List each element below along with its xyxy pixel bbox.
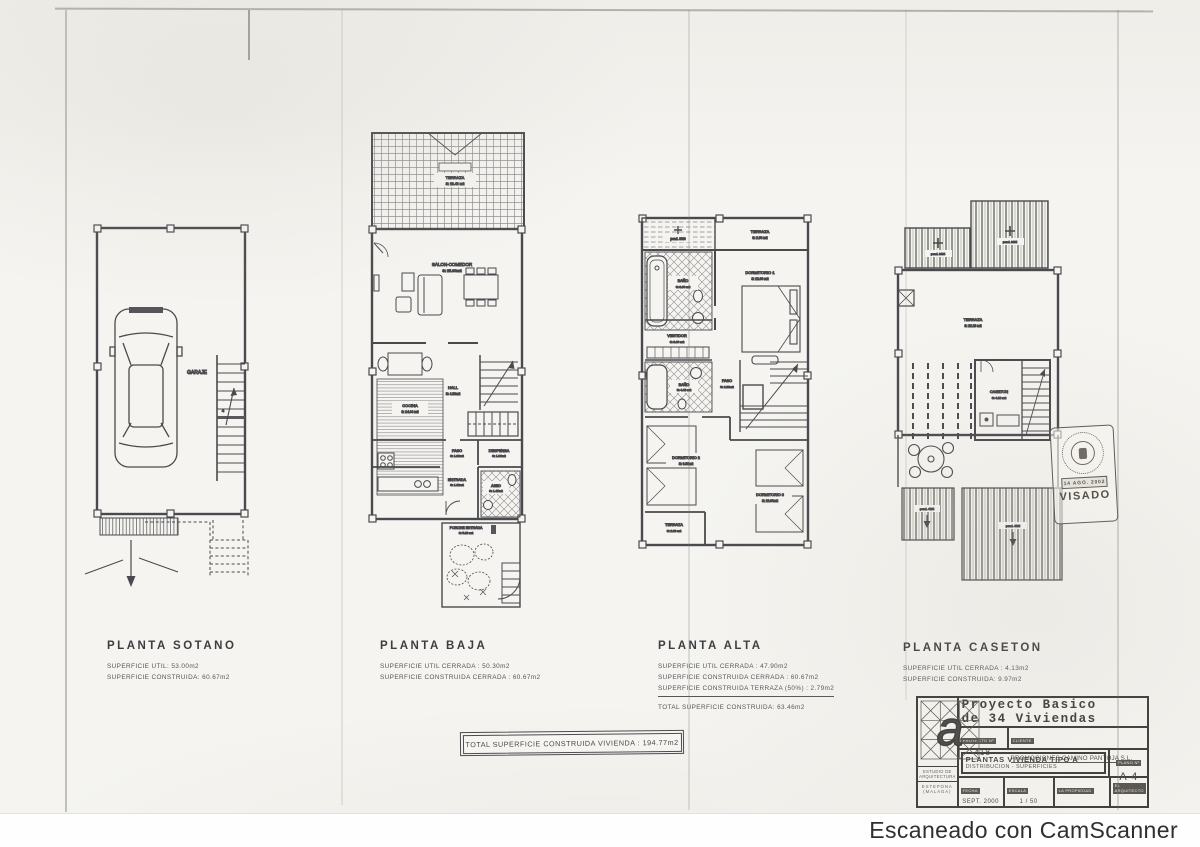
roof-slope-label: pend. 30% <box>670 237 685 241</box>
project-title-cell: Proyecto Basico de 34 Viviendas en Camin… <box>959 698 1148 728</box>
planta-baja-drawing: TERRAZA S: 18.43 m2 SALON-COMEDOR S: 25.… <box>360 125 540 635</box>
total-surface-box: TOTAL SUPERFICIE CONSTRUIDA VIVIENDA : 1… <box>460 730 684 756</box>
scale-value: 1 / 50 <box>1007 799 1051 805</box>
room-area-dorm2: S: 9.38m2 <box>679 462 694 466</box>
title-block: a ESTUDIO DE ARQUITECTURA ESTEPONA (MALA… <box>916 696 1149 808</box>
sheet-title-line2: DISTRIBUCION - SUPERFICIES <box>966 764 1101 770</box>
room-label-despensa: DESPENSA <box>489 449 510 453</box>
roof-slope-label: pend. 30% <box>931 252 946 256</box>
caption-baja: PLANTA BAJA SUPERFICIE UTIL CERRADA : 50… <box>380 640 630 683</box>
camscanner-credit: Escaneado con CamScanner <box>869 817 1178 844</box>
owner-label: LA PROPIEDAD <box>1057 788 1094 794</box>
room-area-paso: S: 1.36m2 <box>450 454 464 458</box>
sheet-title-cell: PLANTAS VIVIENDA TIPO A DISTRIBUCION - S… <box>959 750 1108 776</box>
scale-cell: ESCALA 1 / 50 <box>1005 778 1055 806</box>
project-title-line1: Proyecto Basico <box>962 699 1097 713</box>
bano1: BAÑO S: 3.66 m2 <box>645 252 712 330</box>
room-area-terraza2: S: 2.20 m2 <box>667 529 682 533</box>
chimney-box <box>898 290 914 306</box>
room-label-terraza1: TERRAZA <box>751 229 770 234</box>
caption-alta: PLANTA ALTA SUPERFICIE UTIL CERRADA : 47… <box>658 640 918 713</box>
client-label: CLIENTE <box>1011 738 1034 744</box>
sheet-title-row: PLANTAS VIVIENDA TIPO A DISTRIBUCION - S… <box>959 750 1148 778</box>
caseton-room: CASETON S: 4.13 m2 <box>975 360 1050 440</box>
room-label-porche: PORCHE ENTRADA <box>450 526 483 530</box>
room-area-vestidor: S: 3.60 m2 <box>670 340 685 344</box>
roof-slope-label: pend. 40% <box>1006 524 1021 528</box>
pergola-slats <box>913 363 971 441</box>
sotano-outer-wall <box>97 228 245 514</box>
plan-title-baja: PLANTA BAJA <box>380 640 630 652</box>
scale-label: ESCALA <box>1007 788 1029 794</box>
room-label-vestidor: VESTIDOR <box>667 334 687 338</box>
area-line: SUPERFICIE CONSTRUIDA CERRADA : 60.67m2 <box>380 672 630 683</box>
room-area-caseton: S: 4.13 m2 <box>992 396 1007 400</box>
studio-location: ESTEPONA (MALAGA) <box>918 781 957 796</box>
room-label-caseton: CASETON <box>990 390 1009 394</box>
room-area-hall: S: 4.20m2 <box>446 392 461 396</box>
bano2: BAÑO S: 4.43 m2 <box>645 360 712 412</box>
planta-caseton-drawing: pend. 30% pend. 30% TERRAZA S: 22.23 m2 <box>885 195 1085 590</box>
planta-sotano-drawing: GARAJE 4 <box>85 220 265 595</box>
aseo: ASEO S: 1.47m2 <box>481 471 520 517</box>
bed-icon-dorm1 <box>742 286 800 364</box>
area-line: SUPERFICIE UTIL CERRADA : 47.90m2 <box>658 661 918 672</box>
project-meta-row: PROYECTO Nº 418 CLIENTE PROMOCIONES CAMI… <box>959 728 1148 750</box>
studio-logo: a <box>920 700 955 764</box>
room-area-despensa: S: 1.84m2 <box>492 454 506 458</box>
plan-title-caseton: PLANTA CASETON <box>903 642 1153 654</box>
project-title-line2: de 34 Viviendas <box>962 713 1097 727</box>
room-label-aseo: ASEO <box>491 484 501 488</box>
room-area-bano2: S: 4.43 m2 <box>677 388 692 392</box>
room-area-paso: S: 2.86m2 <box>720 385 734 389</box>
caption-caseton: PLANTA CASETON SUPERFICIE UTIL CERRADA :… <box>903 642 1153 685</box>
plan-areas-alta: SUPERFICIE UTIL CERRADA : 47.90m2 SUPERF… <box>658 661 918 713</box>
date-label: FECHA <box>961 788 980 794</box>
seal-inner-ring <box>1070 440 1095 465</box>
area-total-line: TOTAL SUPERFICIE CONSTRUIDA: 63.46m2 <box>658 702 918 713</box>
studio-name: ESTUDIO DE ARQUITECTURA <box>918 766 957 781</box>
architect-label: EL ARQUITECTO <box>1113 783 1146 794</box>
client-cell: CLIENTE PROMOCIONES CAMINO PANTOJA S.L. <box>1009 728 1148 748</box>
room-area-terraza: S: 18.43 m2 <box>446 182 465 186</box>
room-label-bano2: BAÑO <box>679 382 690 387</box>
room-label-hall: HALL <box>448 385 459 390</box>
car-icon <box>110 307 182 467</box>
room-label-dorm2: DORMITORIO 2 <box>672 456 700 460</box>
garden-plants <box>447 544 493 590</box>
ramp-and-grille <box>85 518 178 587</box>
area-line: SUPERFICIE UTIL CERRADA : 50.30m2 <box>380 661 630 672</box>
caption-sotano: PLANTA SOTANO SUPERFICIE UTIL: 53.00m2 S… <box>107 640 347 683</box>
title-block-left: a ESTUDIO DE ARQUITECTURA ESTEPONA (MALA… <box>918 698 959 806</box>
room-label-paso: PASO <box>722 379 732 383</box>
roof-bottom-right: pend. 40% <box>962 488 1062 580</box>
room-label-terraza2: TERRAZA <box>665 523 683 527</box>
plan-title-alta: PLANTA ALTA <box>658 640 918 652</box>
area-line: SUPERFICIE CONSTRUIDA: 60.67m2 <box>107 672 347 683</box>
door-arc <box>446 501 460 515</box>
room-area-dorm1: S: 12.00 m2 <box>751 277 768 281</box>
room-label-dorm1: DORMITORIO 1 <box>745 270 775 275</box>
plan-title-sotano: PLANTA SOTANO <box>107 640 347 652</box>
logo-a-icon: a <box>920 700 980 760</box>
date-value: SEPT. 2000 <box>961 799 1001 805</box>
room-label-terraza: TERRAZA <box>964 317 983 322</box>
seal-emblem <box>1079 447 1088 458</box>
kitchen: COCINA S: 14.04 m2 <box>377 353 443 495</box>
room-area-aseo: S: 1.47m2 <box>489 489 503 493</box>
room-label-salon: SALON-COMEDOR <box>432 262 473 267</box>
room-area-bano1: S: 3.66 m2 <box>676 285 691 289</box>
sheet-title-line1: PLANTAS VIVIENDA TIPO A <box>966 755 1101 764</box>
room-area-terraza: S: 22.23 m2 <box>964 324 981 328</box>
roof-top-right: pend. 30% <box>971 201 1048 268</box>
round-table-icon <box>909 443 954 478</box>
area-line: SUPERFICIE CONSTRUIDA CERRADA : 60.67m2 <box>658 672 918 683</box>
staircase <box>740 360 808 432</box>
room-area-dorm3: S: 10.00m2 <box>762 499 779 503</box>
staircase: 4 <box>217 355 245 481</box>
area-line: SUPERFICIE UTIL: 53.00m2 <box>107 661 347 672</box>
plan-areas-caseton: SUPERFICIE UTIL CERRADA : 4.13m2 SUPERFI… <box>903 663 1153 685</box>
room-area-porche: S: 5.18 m2 <box>459 531 474 535</box>
roof-bottom-left: pend. 40% <box>902 488 954 540</box>
roof-slope-label: pend. 40% <box>920 507 935 511</box>
salon-furniture <box>374 243 498 315</box>
scanned-floorplan-page: GARAJE 4 <box>0 0 1200 847</box>
date-cell: FECHA SEPT. 2000 <box>959 778 1005 806</box>
porche-entrada: PORCHE ENTRADA S: 5.18 m2 <box>442 523 520 607</box>
room-label-garaje: GARAJE <box>187 370 208 376</box>
owner-cell: LA PROPIEDAD <box>1055 778 1111 806</box>
room-area-entrada: S: 1.62m2 <box>450 483 464 487</box>
roof-slope-label: pend. 30% <box>1003 240 1018 244</box>
room-area-cocina: S: 14.04 m2 <box>401 410 418 414</box>
plan-areas-baja: SUPERFICIE UTIL CERRADA : 50.30m2 SUPERF… <box>380 661 630 683</box>
room-label-dorm3: DORMITORIO 3 <box>756 493 784 497</box>
visado-stamp: 14 AGO. 2002 VISADO <box>1050 424 1119 524</box>
room-label-paso: PASO <box>452 449 462 453</box>
room-label-cocina: COCINA <box>402 403 418 408</box>
room-area-terraza1: S: 2.54 m2 <box>752 236 768 240</box>
area-line: SUPERFICIE UTIL CERRADA : 4.13m2 <box>903 663 1153 674</box>
signature-row: FECHA SEPT. 2000 ESCALA 1 / 50 LA PROPIE… <box>959 778 1148 806</box>
svg-text:a: a <box>937 703 964 756</box>
camscanner-bar: Escaneado con CamScanner <box>0 813 1200 847</box>
staircase <box>468 355 518 436</box>
wall-columns <box>94 225 248 517</box>
planta-alta-drawing: pend. 30% TERRAZA S: 2.54 m2 BAÑO S: 3.6… <box>630 210 820 555</box>
sheet-number-cell: PLANO Nº A 4 <box>1108 750 1148 776</box>
room-label-entrada: ENTRADA <box>448 478 467 482</box>
area-line: SUPERFICIE CONSTRUIDA: 9.97m2 <box>903 674 1153 685</box>
stamp-date: 14 AGO. 2002 <box>1061 476 1108 489</box>
total-surface-text: TOTAL SUPERFICIE CONSTRUIDA VIVIENDA : 1… <box>462 732 681 753</box>
stamp-visado-text: VISADO <box>1054 488 1117 503</box>
architects-college-seal-icon <box>1061 431 1105 475</box>
room-label-terraza: TERRAZA <box>446 175 465 180</box>
title-block-right: Proyecto Basico de 34 Viviendas en Camin… <box>959 698 1148 806</box>
area-line: SUPERFICIE CONSTRUIDA TERRAZA (50%) : 2.… <box>658 683 834 696</box>
room-label-bano1: BAÑO <box>678 278 689 283</box>
plan-areas-sotano: SUPERFICIE UTIL: 53.00m2 SUPERFICIE CONS… <box>107 661 347 683</box>
wall-columns <box>895 267 1061 438</box>
room-area-salon: S: 25.00m2 <box>442 269 461 273</box>
lower-terrace <box>898 435 1058 487</box>
architect-cell: EL ARQUITECTO <box>1111 778 1148 806</box>
entry-arc <box>498 577 520 599</box>
entry-steps <box>502 563 520 603</box>
roof-top-left: pend. 30% <box>905 228 970 268</box>
sheet-number-label: PLANO Nº <box>1116 760 1141 766</box>
